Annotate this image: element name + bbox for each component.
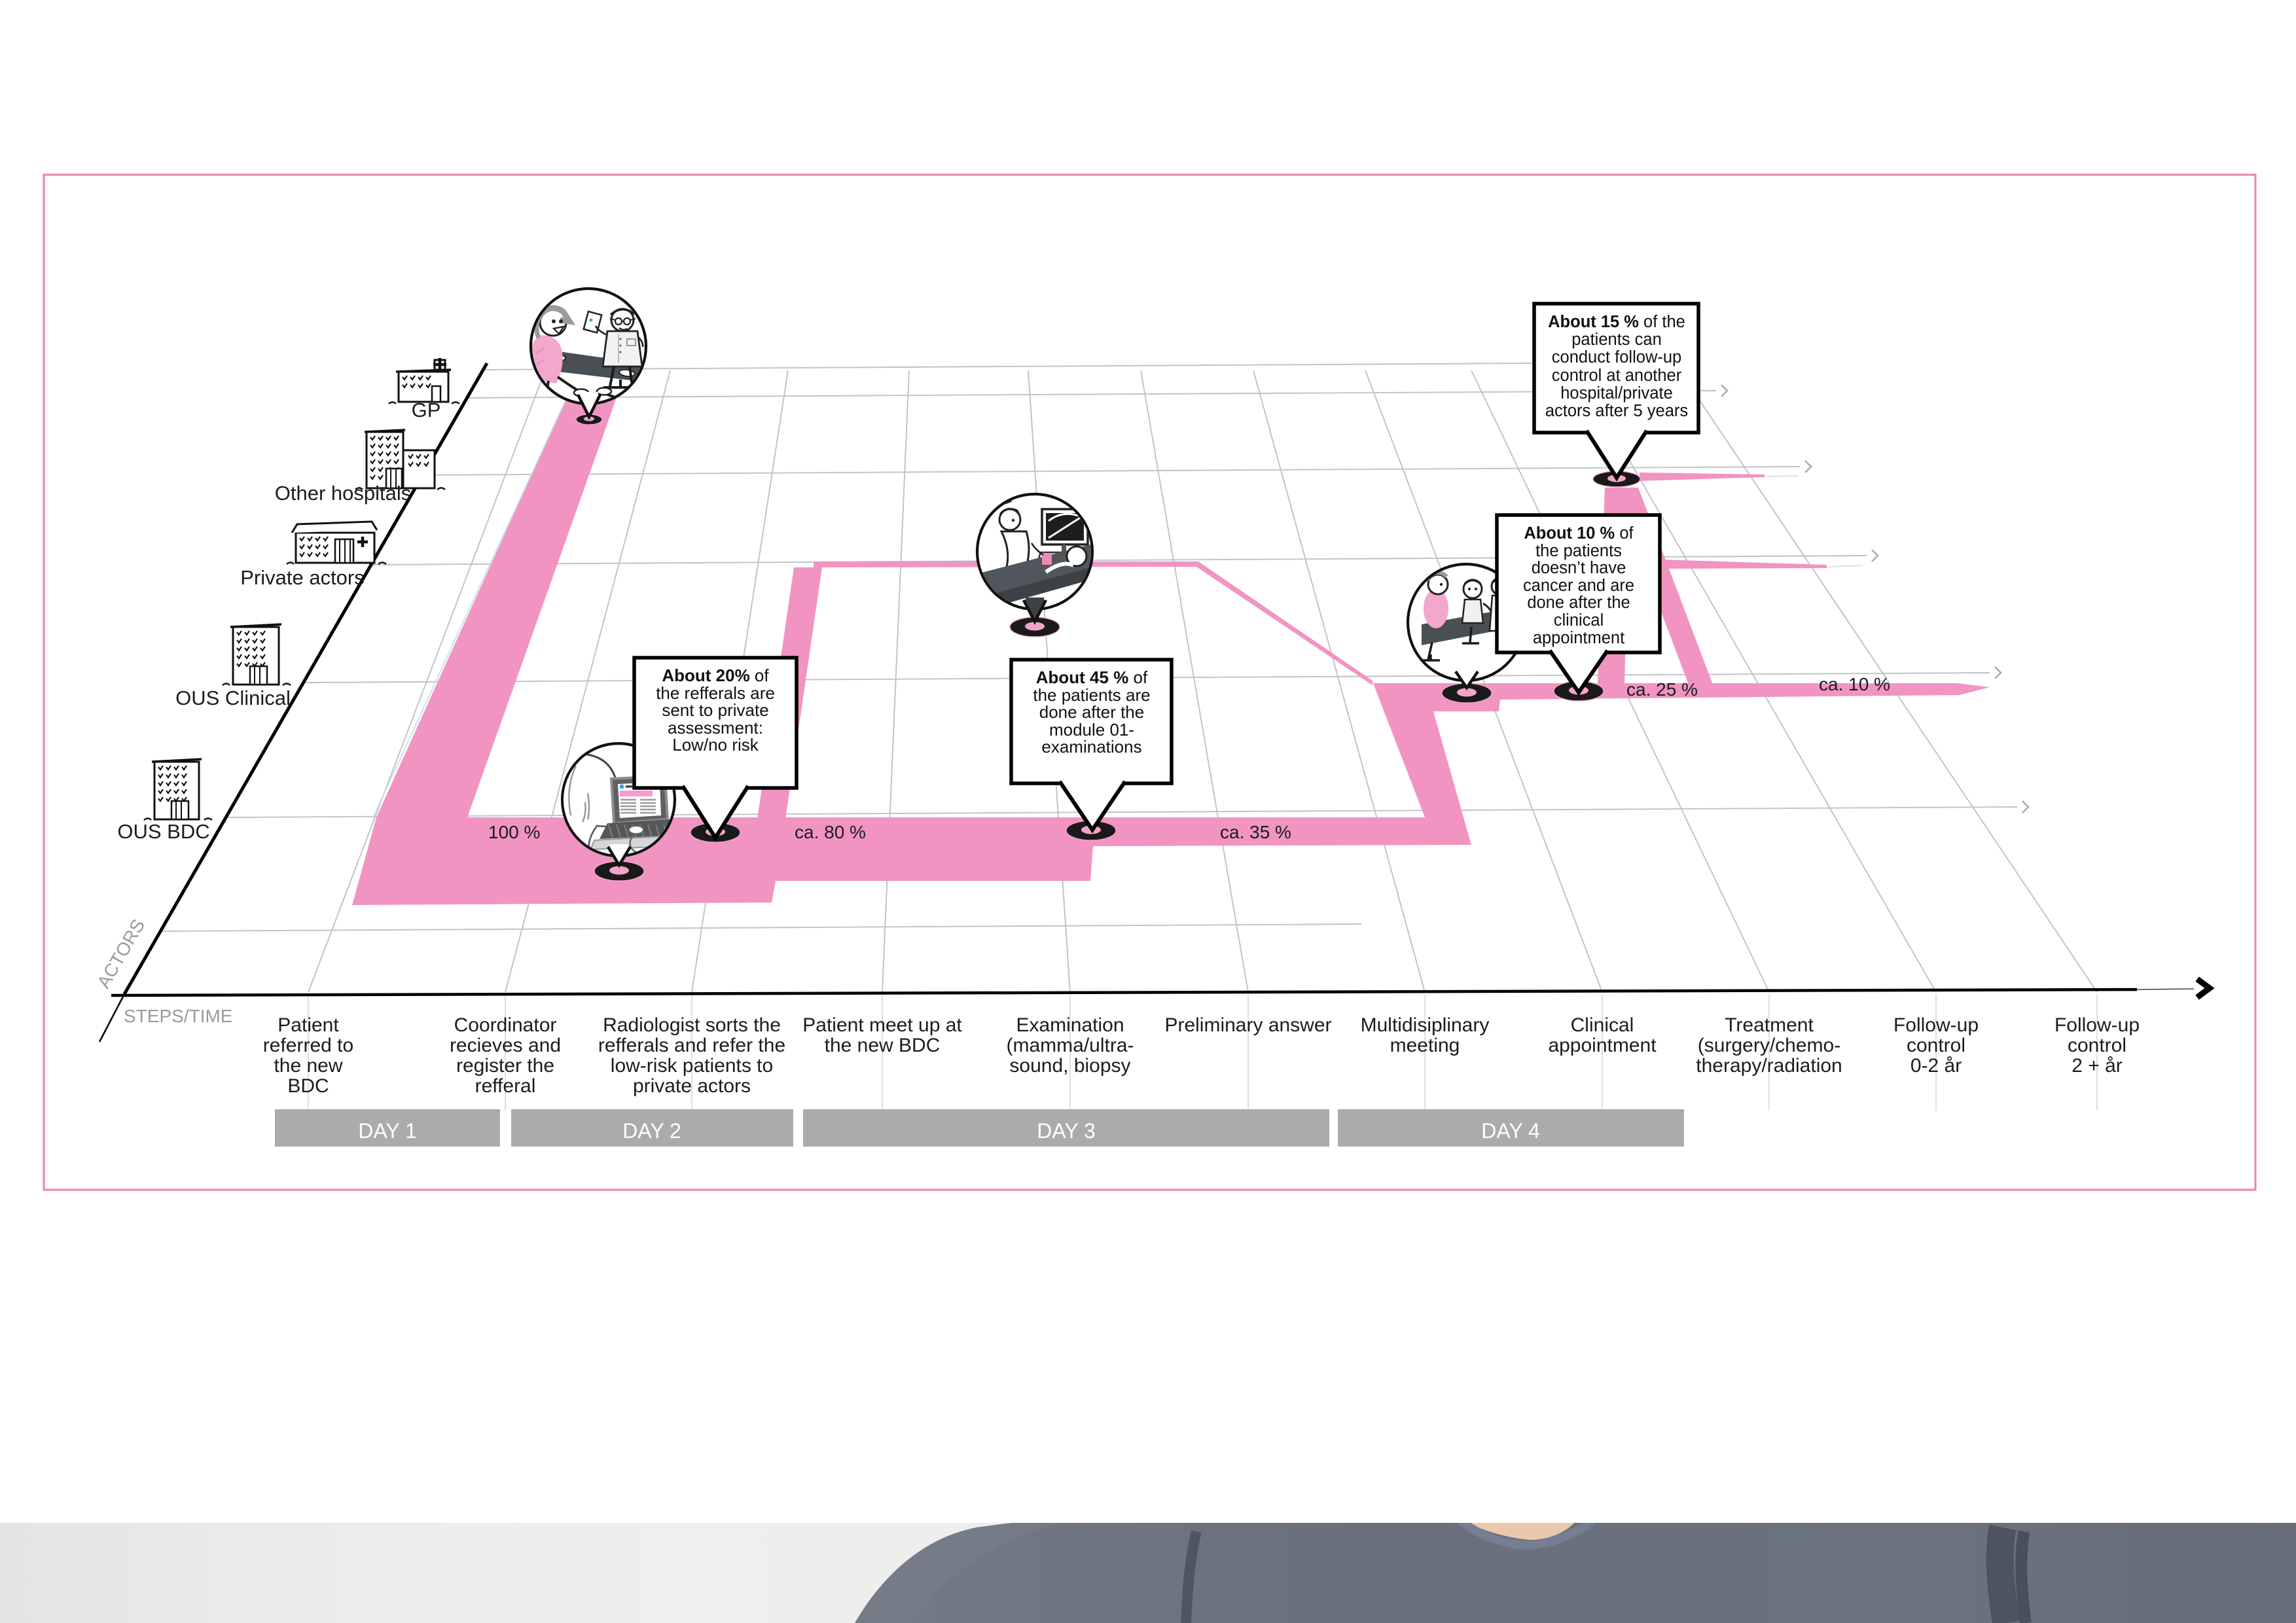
svg-text:low-risk patients to: low-risk patients to (611, 1055, 773, 1077)
svg-text:control: control (1907, 1035, 1965, 1056)
svg-text:GP: GP (412, 399, 441, 421)
svg-text:About 10 % of: About 10 % of (1524, 524, 1634, 543)
svg-text:OUS Clinical: OUS Clinical (175, 687, 291, 709)
svg-text:examinations: examinations (1041, 737, 1141, 757)
svg-text:patients can: patients can (1571, 330, 1662, 349)
svg-text:done after the: done after the (1527, 594, 1630, 612)
svg-text:recieves and: recieves and (450, 1035, 561, 1056)
svg-text:ca. 35 %: ca. 35 % (1220, 822, 1291, 842)
svg-text:DAY 1: DAY 1 (358, 1119, 417, 1143)
svg-text:(surgery/chemo-: (surgery/chemo- (1698, 1035, 1840, 1056)
svg-text:Multidisiplinary: Multidisiplinary (1361, 1014, 1490, 1036)
svg-text:Treatment: Treatment (1725, 1014, 1814, 1036)
svg-text:sound, biopsy: sound, biopsy (1009, 1055, 1130, 1077)
svg-text:cancer and are: cancer and are (1523, 577, 1634, 595)
svg-text:therapy/radiation: therapy/radiation (1696, 1055, 1842, 1077)
svg-text:Follow-up: Follow-up (2054, 1014, 2140, 1036)
svg-text:100 %: 100 % (488, 822, 540, 842)
svg-text:DAY 4: DAY 4 (1481, 1119, 1540, 1143)
svg-text:STEPS/TIME: STEPS/TIME (124, 1006, 232, 1026)
svg-text:the new: the new (274, 1055, 342, 1077)
svg-text:2 + år: 2 + år (2072, 1055, 2123, 1077)
svg-text:private actors: private actors (633, 1075, 751, 1097)
svg-text:Radiologist sorts the: Radiologist sorts the (603, 1014, 781, 1036)
svg-text:DAY 2: DAY 2 (622, 1119, 681, 1143)
svg-text:ca. 25 %: ca. 25 % (1626, 679, 1698, 700)
svg-text:Examination: Examination (1016, 1014, 1124, 1036)
svg-text:referred to: referred to (263, 1035, 353, 1056)
svg-text:Preliminary answer: Preliminary answer (1164, 1014, 1331, 1036)
svg-text:ca. 80 %: ca. 80 % (795, 822, 866, 842)
svg-text:DAY 3: DAY 3 (1037, 1119, 1096, 1143)
svg-text:appointment: appointment (1533, 629, 1624, 647)
svg-text:doesn’t have: doesn’t have (1532, 559, 1626, 577)
svg-text:Follow-up: Follow-up (1893, 1014, 1979, 1036)
svg-text:done after the: done after the (1039, 702, 1144, 722)
svg-text:BDC: BDC (287, 1075, 329, 1097)
svg-text:OUS BDC: OUS BDC (117, 820, 209, 843)
svg-text:Patient meet up at: Patient meet up at (802, 1014, 962, 1036)
svg-text:(mamma/ultra-: (mamma/ultra- (1006, 1035, 1134, 1056)
svg-text:conduct follow-up: conduct follow-up (1552, 348, 1681, 366)
svg-text:refferals and refer the: refferals and refer the (598, 1035, 785, 1056)
svg-text:0-2 år: 0-2 år (1910, 1055, 1962, 1077)
svg-text:the new BDC: the new BDC (825, 1035, 941, 1056)
svg-text:Coordinator: Coordinator (454, 1014, 557, 1036)
svg-text:Patient: Patient (278, 1014, 339, 1036)
svg-text:appointment: appointment (1548, 1035, 1657, 1056)
svg-text:register the: register the (456, 1055, 554, 1077)
svg-text:control at another: control at another (1552, 366, 1682, 385)
svg-text:the patients: the patients (1535, 542, 1622, 560)
svg-text:Other hospitals: Other hospitals (275, 482, 412, 505)
svg-text:Low/no risk: Low/no risk (672, 735, 759, 755)
svg-text:Clinical: Clinical (1571, 1014, 1634, 1036)
svg-text:meeting: meeting (1390, 1035, 1460, 1056)
svg-text:About 20% of: About 20% of (662, 666, 769, 685)
svg-text:clinical: clinical (1554, 611, 1604, 630)
svg-text:Private actors: Private actors (240, 566, 365, 589)
svg-text:ca. 10 %: ca. 10 % (1819, 674, 1890, 694)
svg-text:refferal: refferal (475, 1075, 536, 1097)
svg-text:hospital/private: hospital/private (1560, 384, 1673, 402)
svg-text:About 45 % of: About 45 % of (1036, 668, 1148, 687)
svg-text:actors after 5 years: actors after 5 years (1545, 402, 1688, 420)
svg-text:sent to private: sent to private (662, 700, 768, 720)
svg-text:control: control (2068, 1035, 2126, 1056)
svg-text:About 15 % of the: About 15 % of the (1548, 313, 1685, 331)
